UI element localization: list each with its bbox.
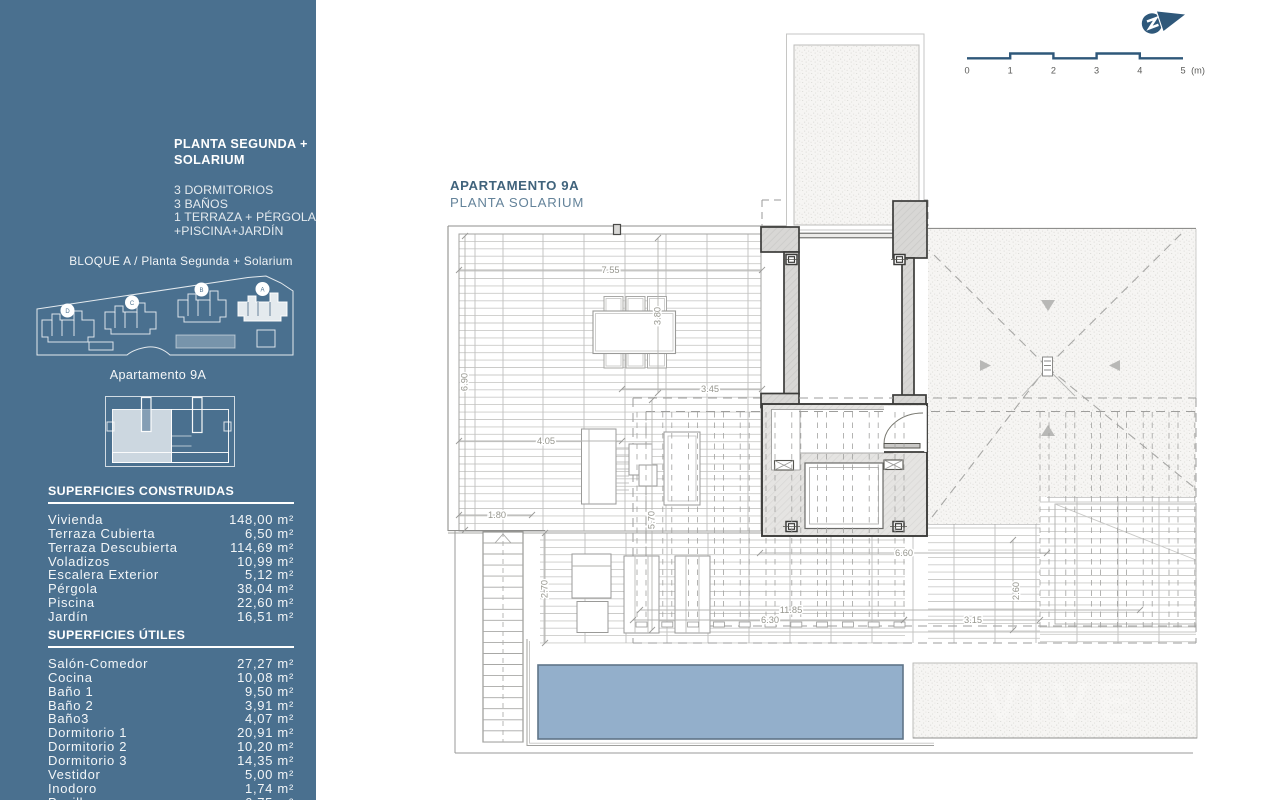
svg-text:11.85: 11.85 — [780, 605, 803, 615]
svg-text:2: 2 — [1051, 66, 1056, 76]
svg-text:2.60: 2.60 — [1011, 582, 1021, 600]
svg-text:1: 1 — [1008, 66, 1013, 76]
svg-text:3: 3 — [1094, 66, 1099, 76]
svg-text:3.15: 3.15 — [964, 615, 982, 625]
svg-text:5: 5 — [1180, 66, 1185, 76]
svg-text:6.60: 6.60 — [895, 548, 913, 558]
svg-text:6.30: 6.30 — [761, 615, 779, 625]
svg-text:5.70: 5.70 — [647, 511, 657, 529]
svg-text:0: 0 — [964, 66, 969, 76]
svg-text:APARTAMENTO 9A: APARTAMENTO 9A — [450, 178, 579, 193]
svg-text:(m): (m) — [1191, 66, 1205, 76]
svg-text:3.80: 3.80 — [653, 307, 663, 325]
svg-text:7.55: 7.55 — [601, 265, 619, 275]
svg-text:1.80: 1.80 — [488, 510, 506, 520]
svg-text:6.90: 6.90 — [460, 373, 470, 391]
svg-text:C: C — [130, 301, 135, 307]
svg-text:PLANTA SOLARIUM: PLANTA SOLARIUM — [450, 195, 584, 210]
svg-text:2.70: 2.70 — [540, 580, 550, 598]
svg-text:4.05: 4.05 — [537, 436, 555, 446]
svg-text:D: D — [65, 309, 70, 315]
svg-text:3.45: 3.45 — [701, 384, 719, 394]
svg-text:B: B — [199, 288, 203, 294]
svg-text:VIVE: VIVE — [983, 672, 1142, 732]
svg-text:A: A — [260, 288, 264, 294]
svg-text:4: 4 — [1137, 66, 1142, 76]
